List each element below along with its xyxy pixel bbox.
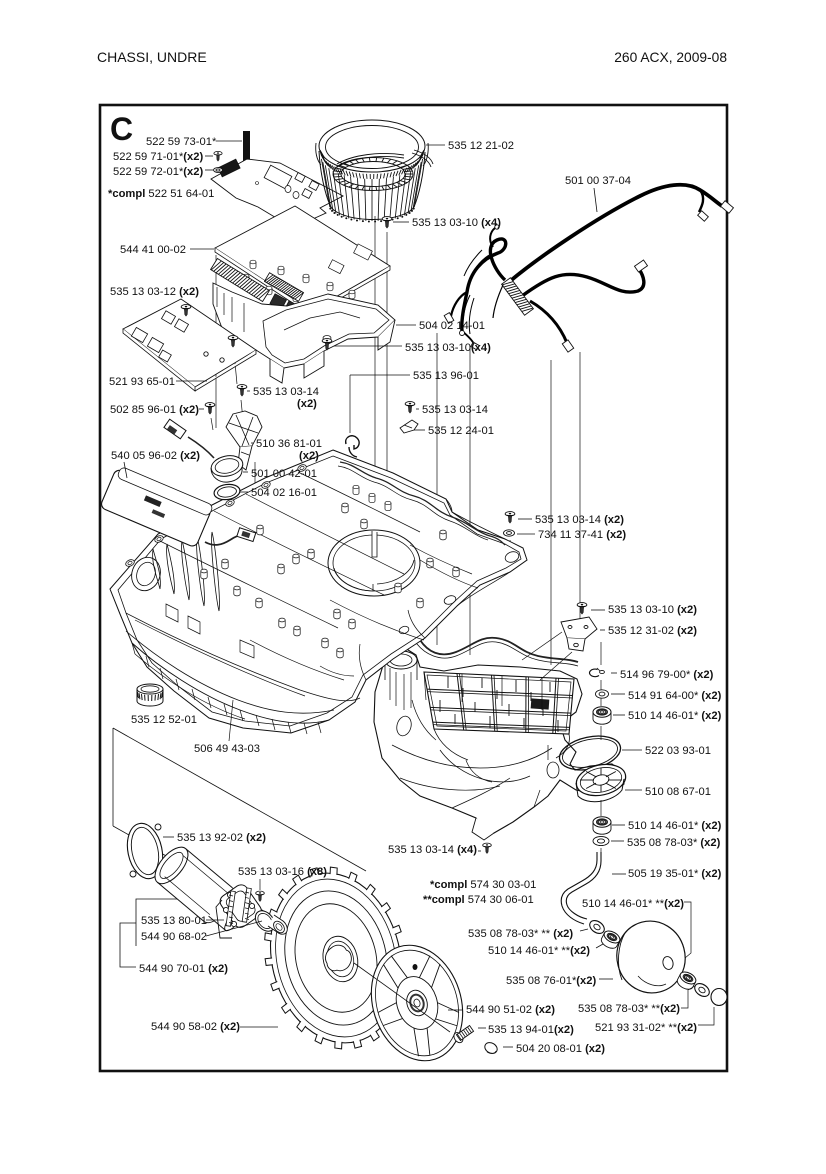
svg-text:522 59 73-01*: 522 59 73-01*: [146, 136, 217, 148]
svg-text:535 13 80-01: 535 13 80-01: [141, 915, 207, 927]
svg-text:535 13 92-02 (x2): 535 13 92-02 (x2): [177, 832, 266, 844]
svg-text:535 13 03-16 (x8): 535 13 03-16 (x8): [238, 866, 327, 878]
svg-text:535 08 78-03* (x2): 535 08 78-03* (x2): [627, 837, 721, 849]
svg-text:521 93 65-01: 521 93 65-01: [109, 376, 175, 388]
svg-text:504 20 08-01 (x2): 504 20 08-01 (x2): [516, 1043, 605, 1055]
svg-text:535 12 31-02 (x2): 535 12 31-02 (x2): [608, 625, 697, 637]
svg-text:535 13 03-12 (x2): 535 13 03-12 (x2): [110, 286, 199, 298]
svg-text:506 49 43-03: 506 49 43-03: [194, 743, 260, 755]
svg-text:535 13 03-10(x4): 535 13 03-10(x4): [405, 342, 491, 354]
svg-text:544 41 00-02: 544 41 00-02: [120, 244, 186, 256]
svg-text:535 13 96-01: 535 13 96-01: [413, 370, 479, 382]
svg-text:522 03 93-01: 522 03 93-01: [645, 745, 711, 757]
svg-text:CHASSI, UNDRE: CHASSI, UNDRE: [97, 49, 207, 65]
svg-text:522 59 72-01*(x2): 522 59 72-01*(x2): [113, 166, 203, 178]
svg-text:535 08 76-01*(x2): 535 08 76-01*(x2): [506, 975, 596, 987]
svg-text:535 13 03-10 (x2): 535 13 03-10 (x2): [608, 604, 697, 616]
svg-text:540 05 96-02 (x2): 540 05 96-02 (x2): [111, 450, 200, 462]
svg-text:535 13 03-14 (x2): 535 13 03-14 (x2): [535, 514, 624, 526]
svg-text:510 08 67-01: 510 08 67-01: [645, 786, 711, 798]
svg-text:535 08 78-03* ** (x2): 535 08 78-03* ** (x2): [468, 928, 573, 940]
svg-text:544 90 68-02: 544 90 68-02: [141, 931, 207, 943]
svg-text:535 08 78-03* **(x2): 535 08 78-03* **(x2): [578, 1003, 680, 1015]
svg-text:*compl 574 30 03-01: *compl 574 30 03-01: [430, 879, 536, 891]
svg-text:260 ACX, 2009-08: 260 ACX, 2009-08: [614, 50, 727, 65]
svg-text:505 19 35-01* (x2): 505 19 35-01* (x2): [628, 868, 722, 880]
svg-text:544 90 51-02 (x2): 544 90 51-02 (x2): [466, 1004, 555, 1016]
svg-text:504 02 14-01: 504 02 14-01: [419, 320, 485, 332]
svg-text:510 14 46-01* (x2): 510 14 46-01* (x2): [628, 710, 722, 722]
svg-text:535 13 03-14: 535 13 03-14: [422, 404, 488, 416]
svg-text:521 93 31-02* **(x2): 521 93 31-02* **(x2): [595, 1022, 697, 1034]
svg-text:C: C: [110, 111, 133, 147]
svg-text:510 36 81-01: 510 36 81-01: [256, 438, 322, 450]
svg-text:501 00 42-01: 501 00 42-01: [251, 468, 317, 480]
svg-text:522 59 71-01*(x2): 522 59 71-01*(x2): [113, 151, 203, 163]
svg-text:535 13 03-14: 535 13 03-14: [253, 386, 319, 398]
svg-text:514 91 64-00* (x2): 514 91 64-00* (x2): [628, 690, 722, 702]
svg-text:(x2): (x2): [299, 450, 319, 462]
svg-text:504 02 16-01: 504 02 16-01: [251, 487, 317, 499]
svg-text:535 13 03-14 (x4): 535 13 03-14 (x4): [388, 844, 477, 856]
svg-text:**compl 574 30 06-01: **compl 574 30 06-01: [423, 894, 534, 906]
svg-text:535 13 03-10 (x4): 535 13 03-10 (x4): [412, 217, 501, 229]
svg-text:535 12 52-01: 535 12 52-01: [131, 714, 197, 726]
svg-text:544 90 70-01 (x2): 544 90 70-01 (x2): [139, 963, 228, 975]
svg-text:734 11 37-41 (x2): 734 11 37-41 (x2): [538, 529, 626, 541]
svg-text:535 13 94-01(x2): 535 13 94-01(x2): [488, 1024, 574, 1036]
svg-text:502 85 96-01 (x2): 502 85 96-01 (x2): [110, 404, 199, 416]
svg-text:514 96 79-00* (x2): 514 96 79-00* (x2): [620, 669, 714, 681]
svg-text:535 12 21-02: 535 12 21-02: [448, 140, 514, 152]
svg-text:535 12 24-01: 535 12 24-01: [428, 425, 494, 437]
svg-text:510 14 46-01* (x2): 510 14 46-01* (x2): [628, 820, 722, 832]
svg-text:510 14 46-01* **(x2): 510 14 46-01* **(x2): [488, 945, 590, 957]
svg-text:(x2): (x2): [297, 398, 317, 410]
svg-text:510 14 46-01* **(x2): 510 14 46-01* **(x2): [582, 898, 684, 910]
svg-text:501 00 37-04: 501 00 37-04: [565, 175, 631, 187]
svg-text:544 90 58-02 (x2): 544 90 58-02 (x2): [151, 1021, 240, 1033]
svg-text:*compl 522 51 64-01: *compl 522 51 64-01: [108, 188, 214, 200]
